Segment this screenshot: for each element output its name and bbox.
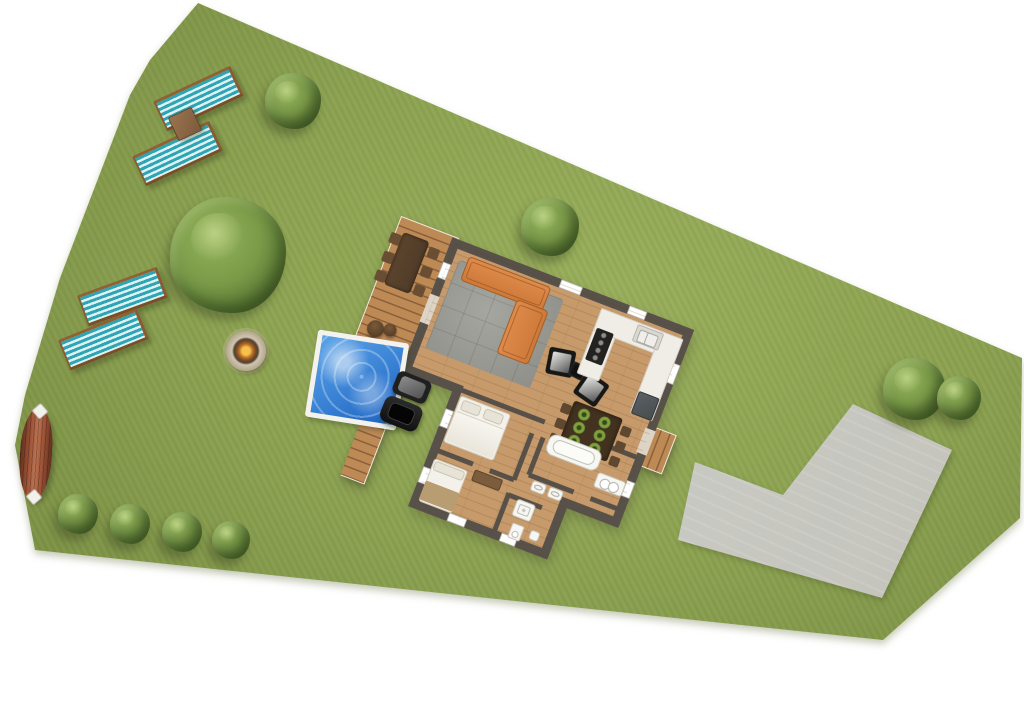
bush bbox=[162, 512, 202, 552]
site-plan-canvas: Top-down site plan of a holiday home wit… bbox=[0, 0, 1024, 718]
bush bbox=[58, 494, 98, 534]
tree bbox=[883, 358, 945, 420]
tree bbox=[170, 197, 286, 313]
bush bbox=[110, 504, 150, 544]
tree bbox=[937, 376, 981, 420]
bush bbox=[212, 521, 250, 559]
fire-pit bbox=[226, 331, 266, 371]
tree bbox=[265, 73, 321, 129]
tree bbox=[521, 198, 579, 256]
